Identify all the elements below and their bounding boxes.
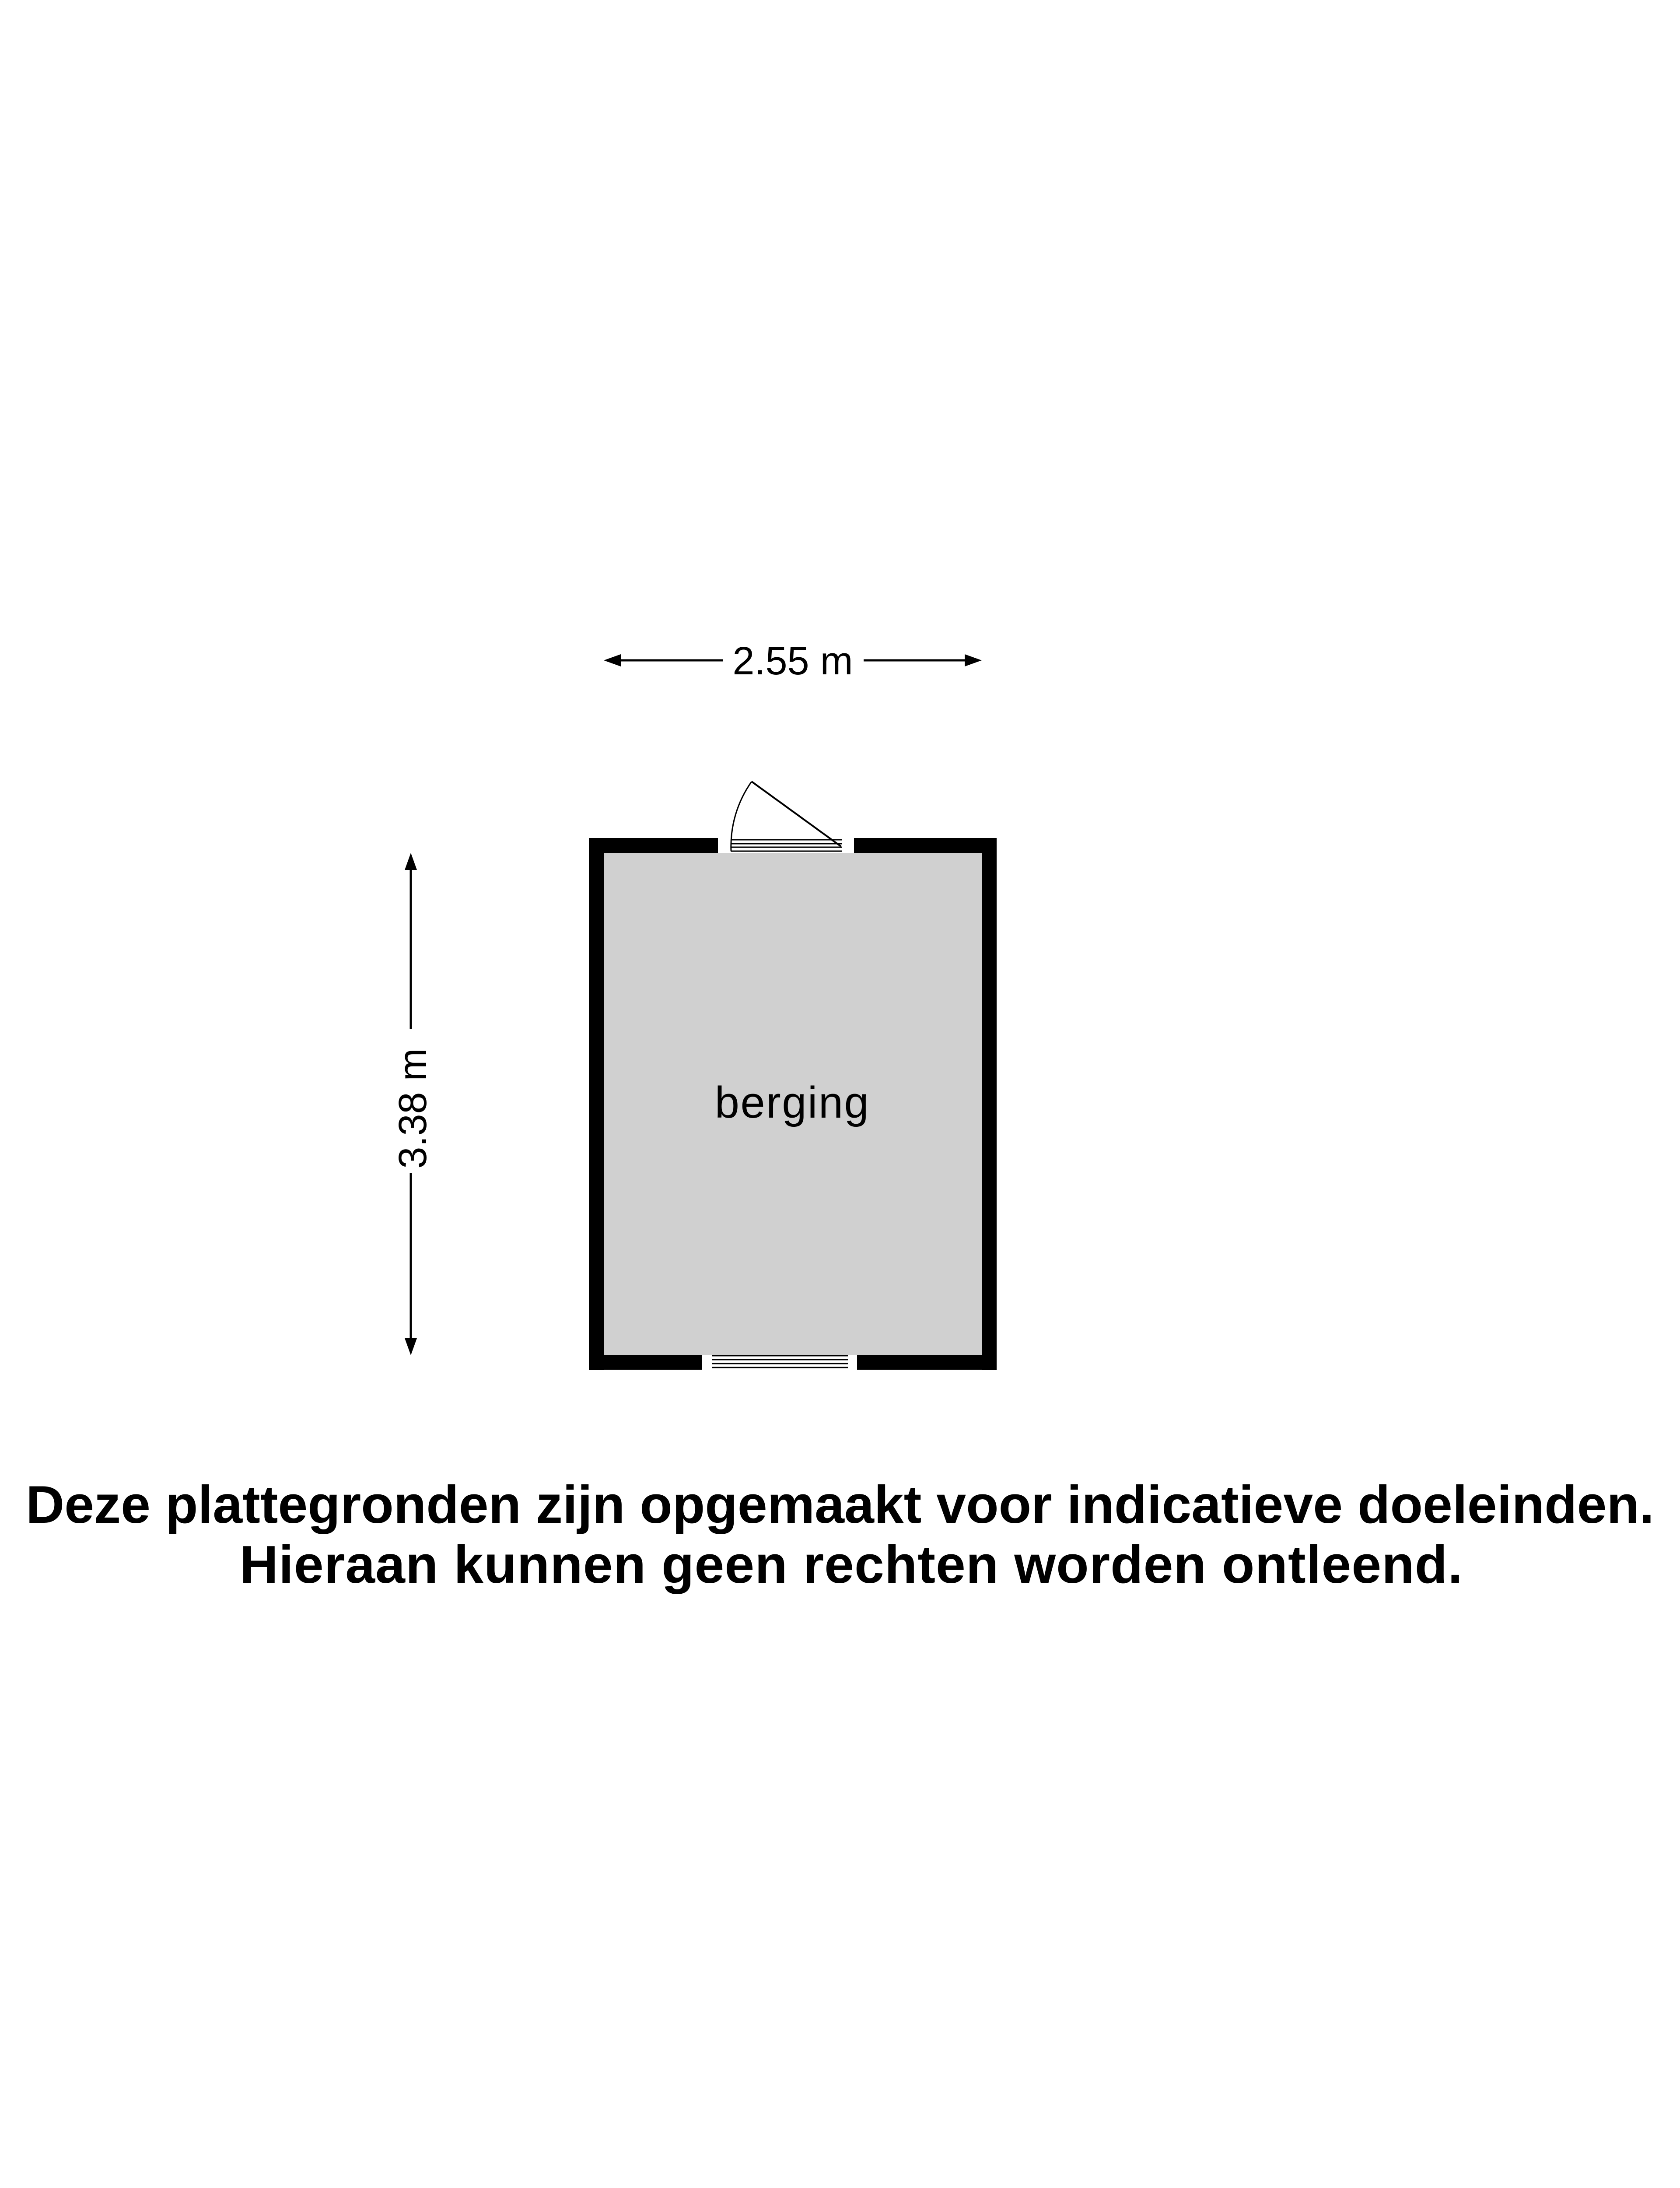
svg-text:2.55 m: 2.55 m	[732, 639, 853, 683]
svg-text:Deze plattegronden zijn opgema: Deze plattegronden zijn opgemaakt voor i…	[26, 1475, 1654, 1534]
svg-text:berging: berging	[715, 1078, 870, 1127]
svg-text:3.38 m: 3.38 m	[391, 1048, 435, 1168]
svg-text:Hieraan kunnen geen rechten wo: Hieraan kunnen geen rechten worden ontle…	[240, 1535, 1463, 1594]
